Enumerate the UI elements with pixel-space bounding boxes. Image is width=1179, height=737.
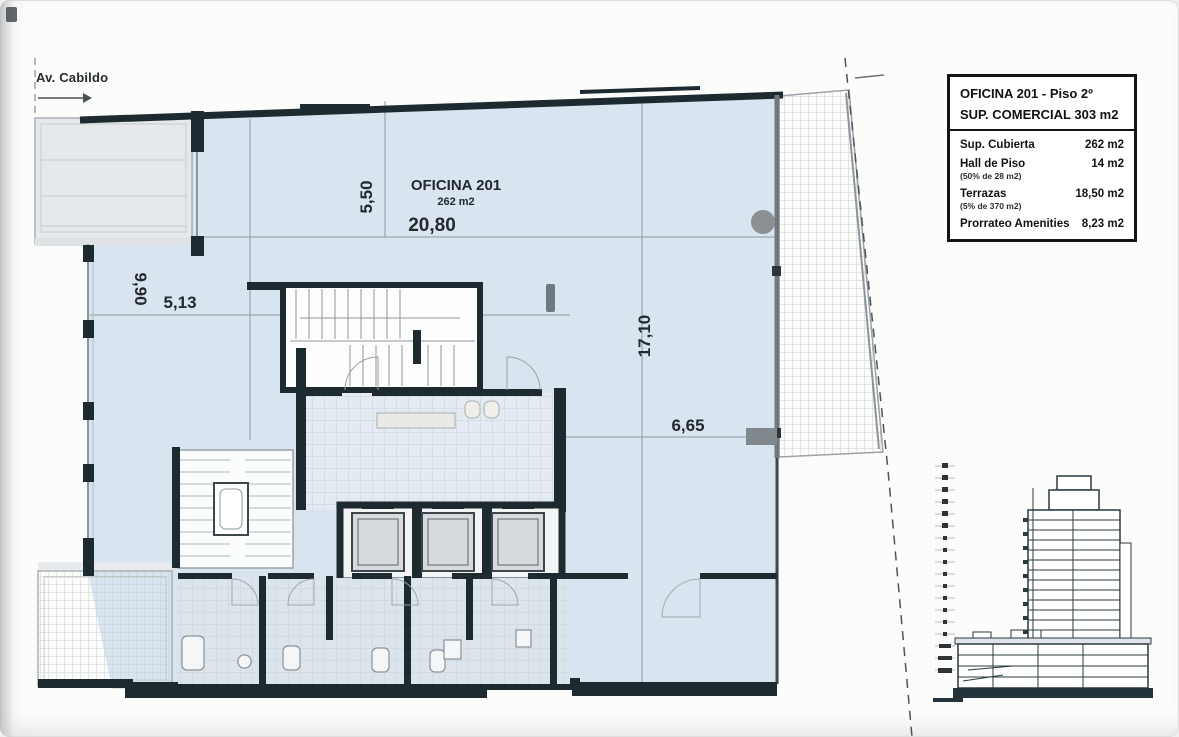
elevators	[340, 503, 562, 583]
dim-top-depth: 5,50	[357, 180, 376, 213]
area-summary-box: OFICINA 201 - Piso 2º SUP. COMERCIAL 303…	[947, 74, 1137, 242]
street-arrow	[38, 93, 92, 103]
secondary-staircase	[172, 447, 293, 568]
wall-jamb	[191, 236, 204, 256]
podium	[955, 630, 1151, 688]
terrace-bottom-left	[38, 562, 172, 686]
dim-top-width: 20,80	[408, 215, 456, 236]
room-area: 262 m2	[437, 196, 474, 208]
main-staircase	[247, 285, 480, 390]
building-section-drawing	[933, 448, 1173, 710]
row-label: Terrazas	[960, 188, 1006, 200]
dim-left-width: 5,13	[163, 293, 196, 312]
lot-tick	[855, 75, 884, 78]
row-label: Hall de Piso	[960, 158, 1025, 170]
row-note: (5% de 370 m2)	[960, 201, 1124, 211]
summary-title: OFICINA 201 - Piso 2º	[960, 86, 1124, 101]
row-value: 14 m2	[1091, 158, 1124, 170]
ground-line	[953, 688, 1153, 698]
summary-row: Terrazas 18,50 m2 (5% de 370 m2)	[960, 188, 1124, 211]
row-value: 262 m2	[1085, 139, 1124, 151]
summary-row: Hall de Piso 14 m2 (50% de 28 m2)	[960, 158, 1124, 181]
floor-plan-drawing: OFICINA 201 262 m2 20,80 5,50 9,90 5,13 …	[0, 0, 930, 737]
row-value: 18,50 m2	[1075, 188, 1124, 200]
dim-right-height: 17,10	[635, 315, 654, 358]
level-markers	[935, 463, 955, 673]
summary-rows: Sup. Cubierta 262 m2 Hall de Piso 14 m2 …	[950, 131, 1134, 239]
dim-left-height: 9,90	[131, 272, 150, 305]
floor-plan-page: Av. Cabildo	[0, 0, 1179, 737]
row-note: (50% de 28 m2)	[960, 171, 1124, 181]
column-small	[546, 284, 555, 312]
summary-subtitle: SUP. COMERCIAL 303 m2	[960, 107, 1124, 122]
summary-header: OFICINA 201 - Piso 2º SUP. COMERCIAL 303…	[950, 77, 1134, 131]
room-name: OFICINA 201	[411, 177, 501, 194]
wall-stub	[746, 428, 777, 445]
tower	[1023, 476, 1131, 643]
summary-row: Sup. Cubierta 262 m2	[960, 139, 1124, 151]
row-label: Sup. Cubierta	[960, 139, 1035, 151]
row-value: 8,23 m2	[1082, 218, 1124, 230]
balcony-top-left	[35, 118, 192, 246]
summary-row: Prorrateo Amenities 8,23 m2	[960, 218, 1124, 230]
dim-right-width: 6,65	[671, 416, 704, 435]
column	[751, 210, 775, 234]
row-label: Prorrateo Amenities	[960, 218, 1070, 230]
